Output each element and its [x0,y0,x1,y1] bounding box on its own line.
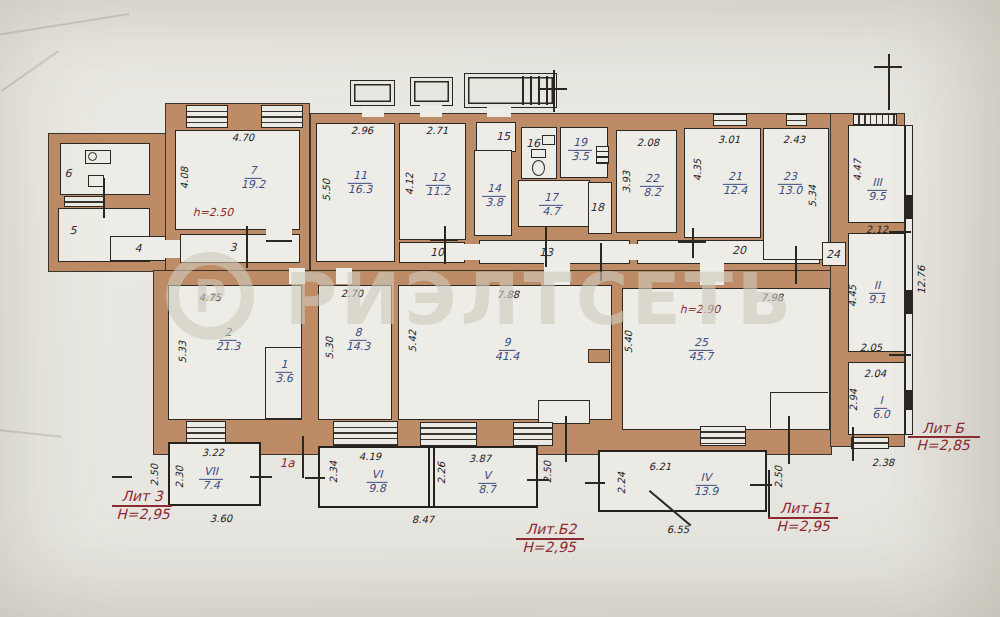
room-area-label: III9.5 [867,177,887,203]
room-number-label: 6 [65,167,72,180]
room-number-label: 15 [496,130,510,143]
room-number-label: 3 [230,241,237,254]
room-area-label: 143.8 [482,183,506,209]
annotation-label: Н=2,95 [116,506,169,522]
dimension-label: 5.50 [321,179,332,201]
dimension-label: 2.96 [351,125,373,136]
dimension-label: 2.43 [783,134,805,145]
room-area-label: VI9.8 [367,469,388,495]
dimension-label: 6.21 [649,461,671,472]
dimension-label: 2.04 [864,368,886,379]
room-number-label: 18 [590,201,604,214]
room-area-label: 13.6 [275,359,293,385]
room-number-label: 10 [430,246,444,259]
room-area-label: V8.7 [478,470,496,496]
floor-plan: 719.21116.31211.2143.8193.5174.7228.2211… [0,0,1000,617]
dimension-label: 2.26 [436,462,447,484]
dimension-label: 6.55 [667,524,689,535]
dimension-label: 2.94 [848,389,859,411]
dimension-label: 2.71 [426,125,448,136]
dimension-label: 2.70 [341,288,363,299]
labels-layer: 719.21116.31211.2143.8193.5174.7228.2211… [0,0,1000,617]
dimension-label: 4.08 [179,167,190,189]
dimension-label: 3.93 [621,171,632,193]
dimension-label: 5.33 [177,341,188,363]
dimension-label: 2.12 [866,224,888,235]
annotation-label: Лит Б [922,420,964,436]
dimension-label: 12.76 [916,266,927,295]
dimension-label: 2.38 [872,457,894,468]
room-area-label: 174.7 [539,192,563,218]
dimension-label: 4.35 [692,159,703,181]
dimension-label: 2.05 [860,342,882,353]
annotation-label: 1а [280,456,295,470]
dimension-label: 2.24 [616,472,627,494]
room-area-label: 1211.2 [426,172,451,198]
room-area-label: IV13.9 [694,472,719,498]
dimension-label: 3.01 [718,134,740,145]
room-area-label: II9.1 [868,280,886,306]
dimension-label: 5.42 [407,330,418,352]
annotation-label: h=2.50 [193,206,234,219]
dimension-label: 2.30 [174,466,185,488]
dimension-label: 4.70 [232,132,254,143]
annotation-label: Н=2,95 [522,539,575,555]
dimension-label: 3.60 [210,513,232,524]
annotation-label: Лит 3 [121,488,162,504]
annotation-label: h=2.90 [680,303,721,316]
room-area-label: 1116.3 [348,170,373,196]
dimension-label: 2.50 [149,464,160,486]
annotation-label: Н=2,95 [776,518,829,534]
room-number-label: 4 [135,242,142,255]
room-area-label: 228.2 [640,173,664,199]
dimension-label: 2.50 [542,461,553,483]
room-area-label: VII7.4 [199,466,223,492]
dimension-label: 4.75 [199,292,221,303]
dimension-label: 5.40 [623,331,634,353]
dimension-label: 3.22 [202,447,224,458]
room-number-label: 20 [732,244,746,257]
room-area-label: 2112.4 [723,171,748,197]
dimension-label: 4.47 [852,159,863,181]
dimension-label: 7.98 [761,292,783,303]
room-number-label: 5 [70,224,77,237]
dimension-label: 5.30 [324,337,335,359]
dimension-label: 2.34 [328,461,339,483]
room-area-label: I6.0 [872,395,890,421]
dimension-label: 7.88 [497,289,519,300]
room-area-label: 193.5 [568,137,592,163]
room-area-label: 221.3 [216,327,241,353]
room-number-label: 24 [826,248,840,261]
room-area-label: 719.2 [241,165,266,191]
dimension-label: 4.12 [404,173,415,195]
dimension-label: 4.19 [359,451,381,462]
annotation-label: Н=2,85 [916,437,969,453]
room-number-label: 16 [526,137,540,150]
dimension-label: 3.87 [469,453,491,464]
dimension-label: 2.08 [637,137,659,148]
room-area-label: 941.4 [495,337,520,363]
dimension-label: 8.47 [412,514,434,525]
room-area-label: 2313.0 [778,171,803,197]
room-area-label: 814.3 [346,327,371,353]
annotation-label: Лит.Б2 [526,521,577,537]
room-number-label: 13 [539,246,553,259]
annotation-label: Лит.Б1 [780,500,831,516]
dimension-label: 2.50 [773,466,784,488]
dimension-label: 5.34 [807,185,818,207]
dimension-label: 4.45 [847,285,858,307]
room-area-label: 2545.7 [689,337,714,363]
